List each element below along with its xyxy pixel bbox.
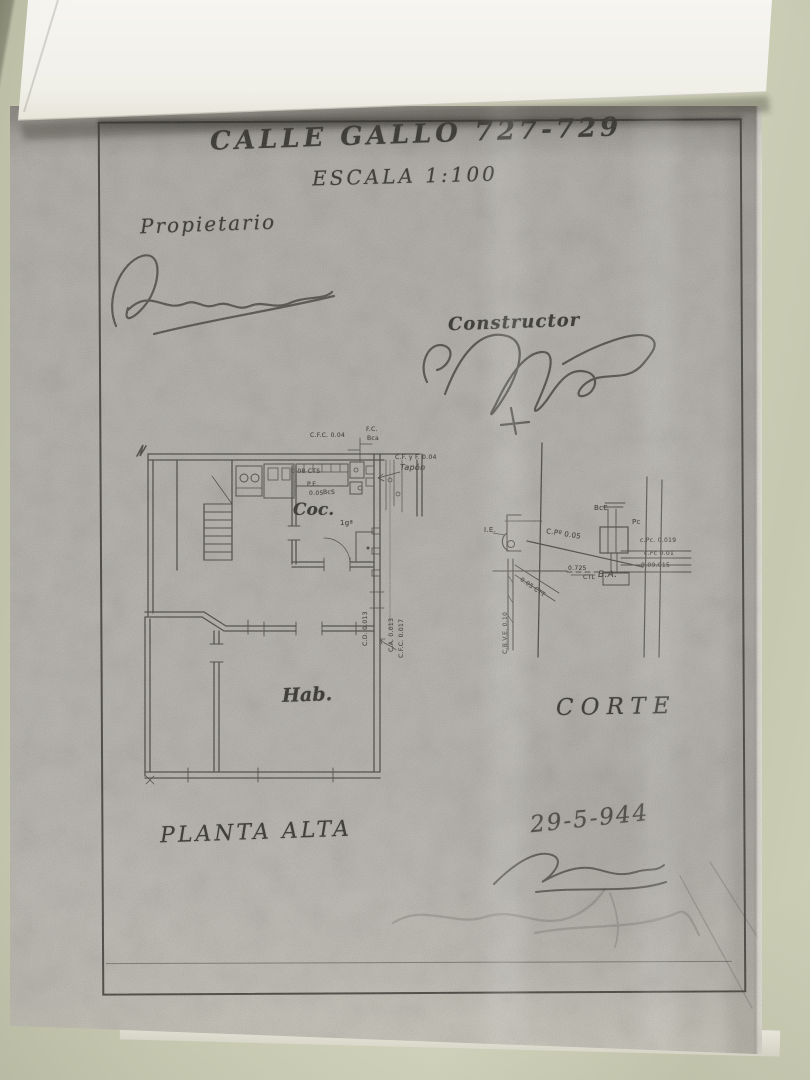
plan-note: C.F. y F. 0.04: [395, 454, 437, 461]
north-arrow: [137, 445, 146, 456]
section-note: Pc: [632, 518, 641, 526]
plan-note: 0.08 CTS: [291, 468, 320, 475]
corner-crease: [640, 856, 770, 1056]
kitchen-label: Coc.: [293, 500, 334, 520]
plan-note-tapon: Tapón: [400, 463, 426, 472]
plan-note-vertical: C.D. 0.013: [362, 582, 369, 646]
section-note: c.Pc 0.01: [644, 550, 674, 557]
plan-note: C.F.C. 0.04: [310, 432, 345, 439]
section-note: B.A.: [598, 570, 617, 580]
section-note: c.Pc. 0.019: [640, 537, 676, 544]
section-drawing: [475, 425, 725, 670]
section-note: CTL: [583, 574, 595, 581]
section-note: 0.725: [568, 565, 587, 572]
plan-note: BcS: [323, 489, 335, 496]
white-sheet: [0, 0, 810, 160]
photo-of-plan-document: CALLE GALLO 727-729 ESCALA 1:100 Propiet…: [0, 0, 810, 1080]
plan-note-vertical: C.A. 0.013: [388, 588, 395, 652]
section-caption: CORTE: [556, 693, 677, 721]
floor-plan-drawing: [128, 420, 468, 800]
section-note: BcE: [594, 504, 608, 512]
owner-label: Propietario: [140, 210, 277, 239]
section-note: 0.09.015: [641, 562, 670, 569]
section-note-vertical: C.B.V.E. 0.10: [502, 574, 509, 654]
bedroom-label: Hab.: [282, 683, 333, 707]
plan-note: P.E.: [307, 481, 319, 488]
plan-note: F.C.: [366, 426, 378, 433]
plan-note: 0.05: [309, 490, 324, 497]
plan-note: Bca: [367, 435, 379, 442]
section-note: I.E.: [484, 526, 496, 534]
owner-signature: [98, 246, 338, 351]
photocopy-sheet: CALLE GALLO 727-729 ESCALA 1:100 Propiet…: [10, 106, 762, 1058]
plan-note-vertical: C.F.C. 0.017: [398, 594, 405, 658]
plan-note: 1gª: [340, 519, 353, 527]
paper-right-edge: [754, 106, 762, 1058]
